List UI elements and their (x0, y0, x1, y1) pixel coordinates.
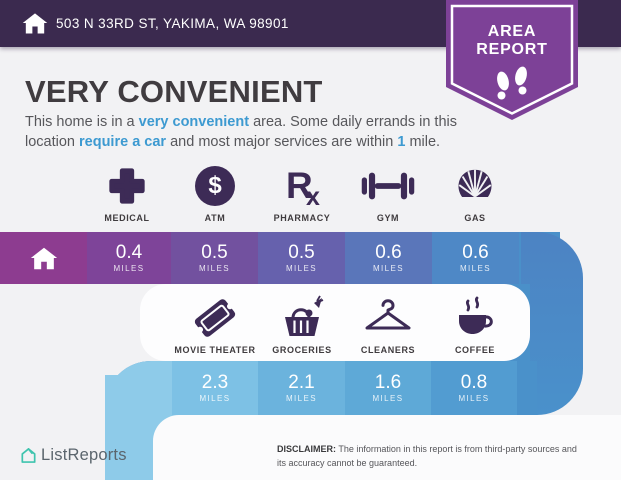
distance-cell-medical: 0.4MILES (87, 232, 171, 284)
summary-paragraph: This home is in a very convenient area. … (25, 112, 461, 152)
distance-cell-groceries: 2.1MILES (258, 361, 345, 415)
amenity-cleaners: CLEANERS (344, 295, 432, 355)
distance-cell-atm: 0.5MILES (171, 232, 258, 284)
distance-cell-cleaners: 1.6MILES (345, 361, 431, 415)
hanger-icon (344, 295, 432, 341)
distance-cell-pharmacy: 0.5MILES (258, 232, 345, 284)
home-icon (29, 243, 59, 273)
pharmacy-rx-icon: Rx (258, 163, 346, 209)
amenity-groceries: GROCERIES (258, 295, 346, 355)
grocery-basket-icon (258, 295, 346, 341)
badge-line2: REPORT (446, 41, 578, 59)
badge-ribbon-shape (446, 0, 578, 122)
highlight-require-a-car: require a car (79, 134, 166, 150)
home-band-segment (0, 232, 87, 284)
highlight-very-convenient: very convenient (139, 114, 249, 130)
area-report-badge: AREA REPORT (446, 0, 578, 122)
distance-cell-gas: 0.6MILES (432, 232, 519, 284)
amenity-pharmacy: Rx PHARMACY (258, 163, 346, 223)
amenity-gym: GYM (344, 163, 432, 223)
property-address: 503 N 33RD ST, YAKIMA, WA 98901 (56, 16, 289, 31)
listreports-logo-icon (20, 447, 37, 469)
amenity-medical: MEDICAL (83, 163, 171, 223)
distance-cell-movie-theater: 2.3MILES (172, 361, 258, 415)
amenity-atm: $ ATM (171, 163, 259, 223)
gas-shell-icon (431, 163, 519, 209)
band2-lead-segment (105, 361, 172, 415)
atm-dollar-icon: $ (171, 163, 259, 209)
area-report-infographic: 503 N 33RD ST, YAKIMA, WA 98901 AREA REP… (0, 0, 621, 480)
medical-cross-icon (83, 163, 171, 209)
home-icon (21, 9, 49, 42)
movie-ticket-icon (171, 295, 259, 341)
coffee-cup-icon (431, 295, 519, 341)
amenity-movie-theater: MOVIE THEATER (171, 295, 259, 355)
amenity-coffee: COFFEE (431, 295, 519, 355)
amenity-gas: GAS (431, 163, 519, 223)
disclaimer-text: DISCLAIMER: The information in this repo… (277, 443, 579, 470)
gym-dumbbell-icon (344, 163, 432, 209)
listreports-brand-text: ListReports (41, 446, 127, 465)
distance-cell-gym: 0.6MILES (345, 232, 432, 284)
distance-cell-coffee: 0.8MILES (431, 361, 517, 415)
page-title: VERY CONVENIENT (25, 74, 455, 110)
badge-line1: AREA (446, 23, 578, 41)
